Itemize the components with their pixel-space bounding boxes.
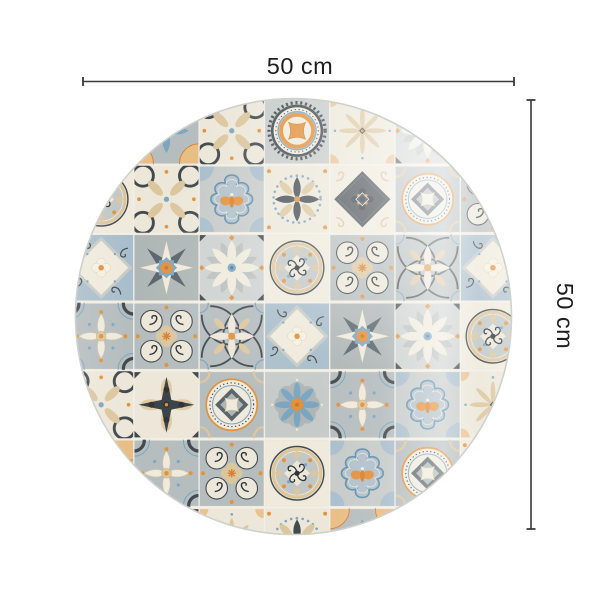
tile-dark-leaf-cross-dotted-ring	[460, 441, 525, 506]
tile-white-sixteen-petal-rosette	[68, 509, 134, 575]
width-dimension: 50 cm	[83, 53, 514, 86]
tile-eight-point-star-rosette	[389, 503, 467, 581]
width-dimension-label: 50 cm	[267, 53, 334, 79]
tile-corner-rings-beige-petals	[459, 97, 527, 165]
height-dimension: 50 cm	[527, 100, 579, 529]
round-tile-mat	[49, 79, 527, 594]
tile-compass-star-dark	[134, 509, 199, 574]
tile-diamond-with-flower-flourish	[69, 98, 134, 163]
product-photo: 50 cm 50 cm	[0, 0, 600, 600]
height-dimension-label: 50 cm	[552, 283, 578, 350]
tile-corner-rings-beige-petals	[459, 508, 527, 576]
product-dimension-diagram: 50 cm 50 cm	[0, 0, 600, 600]
